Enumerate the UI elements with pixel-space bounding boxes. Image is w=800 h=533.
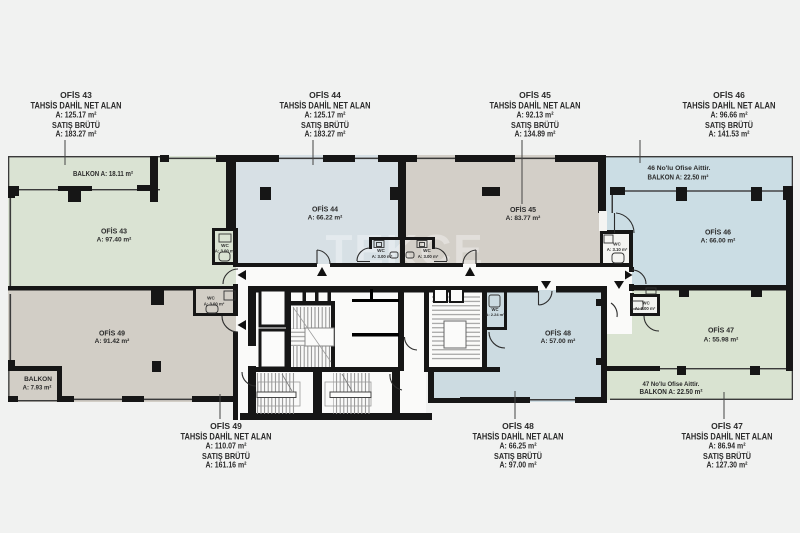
svg-text:TAHSİS DAHİL NET ALAN: TAHSİS DAHİL NET ALAN: [181, 432, 272, 442]
svg-text:A: 55.98 m²: A: 55.98 m²: [704, 337, 740, 344]
svg-text:A: 3.00 m²: A: 3.00 m²: [372, 254, 393, 259]
svg-text:BALKON: BALKON: [24, 376, 52, 383]
svg-text:WC: WC: [423, 248, 431, 253]
svg-text:47 No'lu Ofise Aittir.: 47 No'lu Ofise Aittir.: [643, 381, 700, 388]
svg-text:A: 125.17 m²: A: 125.17 m²: [305, 111, 346, 120]
svg-text:OFİS 48: OFİS 48: [502, 421, 534, 431]
svg-text:OFİS 43: OFİS 43: [60, 90, 92, 100]
svg-text:SATIŞ BRÜTÜ: SATIŞ BRÜTÜ: [511, 120, 559, 130]
svg-text:OFİS 43: OFİS 43: [101, 228, 127, 236]
svg-text:A: 161.16 m²: A: 161.16 m²: [206, 461, 247, 470]
svg-text:A: 91.42 m²: A: 91.42 m²: [95, 338, 131, 345]
svg-text:OFİS 47: OFİS 47: [711, 421, 743, 431]
svg-text:A: 86.94 m²: A: 86.94 m²: [709, 442, 746, 451]
svg-text:WC: WC: [642, 301, 650, 306]
svg-text:A: 3.00 m²: A: 3.00 m²: [215, 249, 236, 254]
svg-text:A: 127.30 m²: A: 127.30 m²: [707, 461, 748, 470]
svg-text:A: 96.66 m²: A: 96.66 m²: [711, 111, 748, 120]
svg-text:WC: WC: [377, 248, 385, 253]
svg-text:A: 66.00 m²: A: 66.00 m²: [701, 238, 737, 245]
svg-text:BALKON A: 18.11 m²: BALKON A: 18.11 m²: [73, 171, 134, 178]
svg-text:A: 125.17 m²: A: 125.17 m²: [56, 111, 97, 120]
svg-text:OFİS 45: OFİS 45: [510, 206, 536, 214]
svg-text:OFİS 45: OFİS 45: [519, 90, 551, 100]
svg-text:A: 110.07 m²: A: 110.07 m²: [206, 442, 247, 451]
svg-text:A: 3.10 m²: A: 3.10 m²: [607, 247, 628, 252]
svg-text:OFİS 46: OFİS 46: [713, 90, 745, 100]
svg-text:OFİS 46: OFİS 46: [705, 229, 731, 237]
svg-text:WC: WC: [613, 242, 621, 247]
svg-text:A: 97.00 m²: A: 97.00 m²: [500, 461, 537, 470]
svg-text:WC: WC: [221, 243, 229, 248]
svg-text:OFİS 49: OFİS 49: [210, 421, 242, 431]
svg-text:A: 92.13 m²: A: 92.13 m²: [517, 111, 554, 120]
svg-text:A: 66.25 m²: A: 66.25 m²: [500, 442, 537, 451]
svg-text:SATIŞ BRÜTÜ: SATIŞ BRÜTÜ: [705, 120, 753, 130]
svg-text:BALKON A: 22.50 m²: BALKON A: 22.50 m²: [640, 389, 704, 396]
svg-text:TAHSİS DAHİL NET ALAN: TAHSİS DAHİL NET ALAN: [683, 101, 776, 111]
svg-text:TAHSİS DAHİL NET ALAN: TAHSİS DAHİL NET ALAN: [490, 101, 581, 111]
svg-text:A: 2.24 m²: A: 2.24 m²: [485, 312, 505, 317]
svg-text:WC: WC: [207, 296, 215, 301]
svg-text:A: 83.77 m²: A: 83.77 m²: [506, 215, 542, 222]
svg-text:A: 134.89 m²: A: 134.89 m²: [515, 130, 556, 139]
svg-text:BALKON A: 22.50 m²: BALKON A: 22.50 m²: [648, 175, 710, 182]
svg-text:A: 3.00 m²: A: 3.00 m²: [204, 302, 225, 307]
svg-text:TAHSİS DAHİL NET ALAN: TAHSİS DAHİL NET ALAN: [280, 101, 371, 111]
svg-text:A: 183.27 m²: A: 183.27 m²: [305, 130, 346, 139]
svg-text:TAHSİS DAHİL NET ALAN: TAHSİS DAHİL NET ALAN: [682, 432, 773, 442]
svg-text:OFİS 47: OFİS 47: [708, 327, 734, 335]
svg-text:A: 66.22 m²: A: 66.22 m²: [308, 215, 344, 222]
svg-text:SATIŞ BRÜTÜ: SATIŞ BRÜTÜ: [52, 120, 100, 130]
svg-text:SATIŞ BRÜTÜ: SATIŞ BRÜTÜ: [703, 451, 751, 461]
svg-text:OFİS 48: OFİS 48: [545, 330, 571, 338]
svg-text:SATIŞ BRÜTÜ: SATIŞ BRÜTÜ: [301, 120, 349, 130]
svg-text:46 No'lu Ofise Aittir.: 46 No'lu Ofise Aittir.: [648, 165, 711, 172]
svg-text:A: 3.00 m²: A: 3.00 m²: [635, 306, 656, 311]
svg-text:A: 141.53 m²: A: 141.53 m²: [709, 130, 750, 139]
svg-text:TAHSİS DAHİL NET ALAN: TAHSİS DAHİL NET ALAN: [31, 101, 122, 111]
svg-text:A: 97.40 m²: A: 97.40 m²: [97, 237, 133, 244]
svg-text:A: 7.93 m²: A: 7.93 m²: [23, 385, 52, 392]
svg-text:A: 183.27 m²: A: 183.27 m²: [56, 130, 97, 139]
svg-text:A: 3.00 m²: A: 3.00 m²: [418, 254, 439, 259]
svg-text:A: 57.00 m²: A: 57.00 m²: [541, 338, 577, 345]
svg-text:OFİS 44: OFİS 44: [309, 90, 341, 100]
svg-text:SATIŞ BRÜTÜ: SATIŞ BRÜTÜ: [202, 451, 250, 461]
svg-text:OFİS 44: OFİS 44: [312, 206, 338, 214]
svg-text:OFİS 49: OFİS 49: [99, 330, 125, 338]
svg-text:SATIŞ BRÜTÜ: SATIŞ BRÜTÜ: [494, 451, 542, 461]
svg-text:TAHSİS DAHİL NET ALAN: TAHSİS DAHİL NET ALAN: [473, 432, 564, 442]
